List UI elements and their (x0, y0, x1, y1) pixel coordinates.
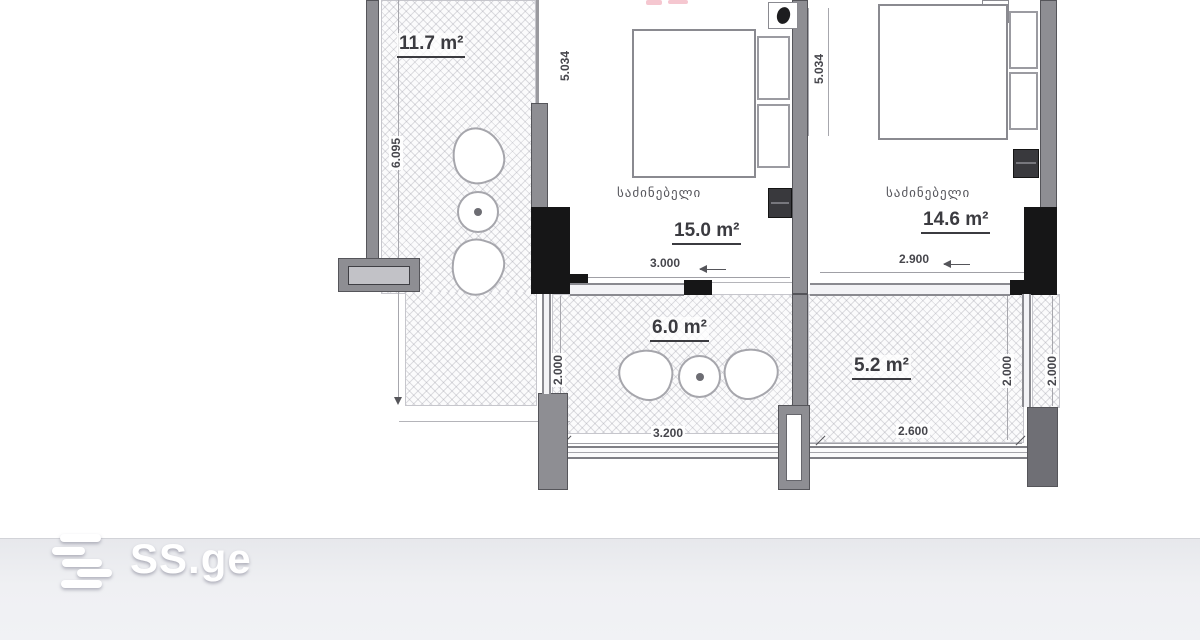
bedroom1-door (768, 2, 798, 29)
area-label-balcony-top: 11.7 m² (397, 33, 465, 58)
round-table-icon (457, 191, 499, 233)
dim-balcony-mid-height: 2.000 (551, 340, 565, 400)
dim-balcony-right-width: 2.600 (896, 424, 930, 438)
wall-bedroom1-left (531, 103, 548, 208)
pillar-black-mid (684, 280, 712, 295)
dim-line-bedroom1 (570, 277, 790, 278)
wall-block-bottom-left (538, 393, 568, 490)
logo-bar (62, 559, 102, 567)
cut-mark (668, 0, 688, 4)
dim-balcony-mid-width: 3.200 (651, 426, 685, 440)
logo-bar (61, 580, 102, 588)
area-label-balcony-right: 5.2 m² (852, 355, 911, 380)
window-band-bedroom1 (570, 283, 684, 296)
ssge-logo: SS.ge (50, 532, 370, 602)
logo-bar (77, 569, 112, 577)
dim-line-bedroom2 (820, 272, 1040, 273)
dim-left-height: 6.095 (389, 123, 403, 183)
cut-mark (646, 0, 662, 5)
logo-bar (60, 534, 101, 542)
wall-balcony-left (366, 0, 379, 260)
bed-2-pillow-top (1009, 11, 1038, 69)
floorplan-image: 11.7 m² საძინებელი 15.0 m² საძინებელი 14… (0, 0, 1200, 640)
bed-1-pillow-bottom (757, 104, 790, 168)
hatch-balcony-right (808, 294, 1024, 443)
dim-ext-line-b (828, 8, 829, 136)
area-label-bedroom2: 14.6 m² (921, 209, 990, 234)
dimension-arrow-icon (944, 264, 970, 265)
pillar-black-mid-right (1010, 280, 1057, 295)
dimension-arrow-icon (700, 269, 726, 270)
dimension-arrow-icon (394, 397, 402, 405)
dim-bedroom1-height: 5.034 (558, 36, 572, 96)
dim-line-left-vertical (398, 0, 399, 400)
pillar-black-left (531, 207, 570, 294)
wall-divider (792, 0, 808, 294)
brand-text: SS.ge (130, 535, 252, 583)
window-sill-block (338, 258, 420, 292)
bed-1 (632, 29, 756, 178)
window-band-right (1022, 294, 1031, 407)
dim-bedroom2-height: 5.034 (812, 39, 826, 99)
balcony-opening-line (712, 282, 792, 283)
dim-ext-line-a (808, 8, 809, 136)
window-band-mid-left (542, 294, 551, 394)
dim-line-balcony-mid (556, 443, 802, 444)
hatch-balcony-top-lower (405, 292, 537, 406)
area-label-bedroom1: 15.0 m² (672, 220, 741, 245)
dim-right-edge-height: 2.000 (1045, 341, 1059, 401)
window-sill-inner (348, 266, 410, 285)
door-hinge-icon (775, 6, 792, 26)
wall-balcony-mid-right (792, 294, 808, 409)
logo-bar (52, 547, 85, 555)
room-name-bedroom2: საძინებელი (886, 186, 970, 201)
dim-balcony-right-height: 2.000 (1000, 341, 1014, 401)
bed-2-pillow-bottom (1009, 72, 1038, 130)
dim-bedroom1-width: 3.000 (648, 256, 682, 270)
wall-bedroom2-right (1040, 0, 1057, 208)
balcony-door-leaf (786, 414, 802, 481)
railing-line (536, 0, 539, 103)
window-band-bottom-left (568, 446, 778, 459)
bed-1-pillow-top (757, 36, 790, 100)
nightstand-2 (1013, 149, 1039, 178)
round-table-icon (678, 355, 721, 398)
room-name-bedroom1: საძინებელი (617, 186, 701, 201)
nightstand-1 (768, 188, 792, 218)
dim-bedroom2-width: 2.900 (897, 252, 931, 266)
wall-block-bottom-right (1027, 407, 1058, 487)
bed-2 (878, 4, 1008, 140)
window-band-bottom-right (810, 446, 1027, 459)
dim-line-balcony-right (810, 443, 1022, 444)
area-label-balcony-mid: 6.0 m² (650, 317, 709, 342)
window-band-bedroom2 (810, 283, 1010, 296)
